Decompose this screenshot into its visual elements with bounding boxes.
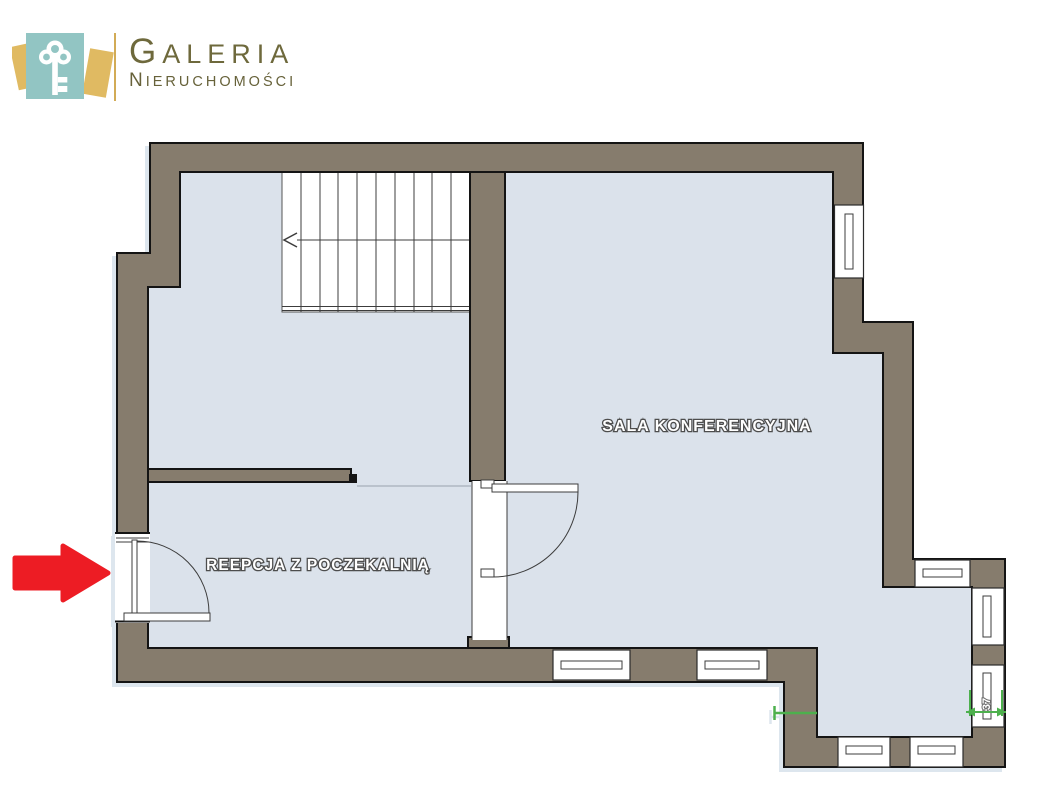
room-label-conference: SALA KONFERENCYJNA (602, 418, 811, 435)
floor-plan: SALA KONFERENCYJNA REEPCJA Z POCZEKALNIĄ… (0, 0, 1038, 800)
window-south-a (553, 650, 630, 680)
wall-reception-divider (147, 469, 351, 482)
room-label-reception: REEPCJA Z POCZEKALNIĄ (206, 557, 430, 574)
building: SALA KONFERENCYJNA REEPCJA Z POCZEKALNIĄ… (115, 143, 1006, 767)
window-se-east-1 (972, 588, 1004, 645)
window-east-upper (835, 205, 864, 278)
floor-plan-page: GALERIA NIERUCHOMOŚCI (0, 0, 1038, 800)
window-se-south-2 (910, 737, 963, 767)
staircase (282, 172, 470, 312)
window-se-east-2 (972, 665, 1004, 727)
entrance-arrow-icon (15, 546, 108, 600)
window-se-south-1 (838, 737, 890, 767)
wall-central (470, 170, 505, 481)
window-se-north (915, 560, 970, 587)
wall-divider-endcap (349, 474, 357, 483)
window-south-b (697, 650, 767, 680)
dimension-label: 37 (981, 698, 993, 710)
